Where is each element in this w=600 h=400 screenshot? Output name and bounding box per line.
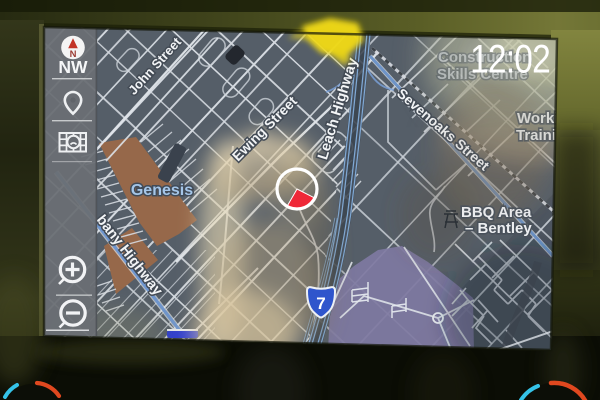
svg-text:7: 7 [316,294,325,313]
svg-text:12:02: 12:02 [470,37,550,81]
svg-text:– Bentley: – Bentley [465,220,532,237]
svg-text:NW: NW [58,57,88,77]
svg-text:Genesis: Genesis [131,182,193,199]
